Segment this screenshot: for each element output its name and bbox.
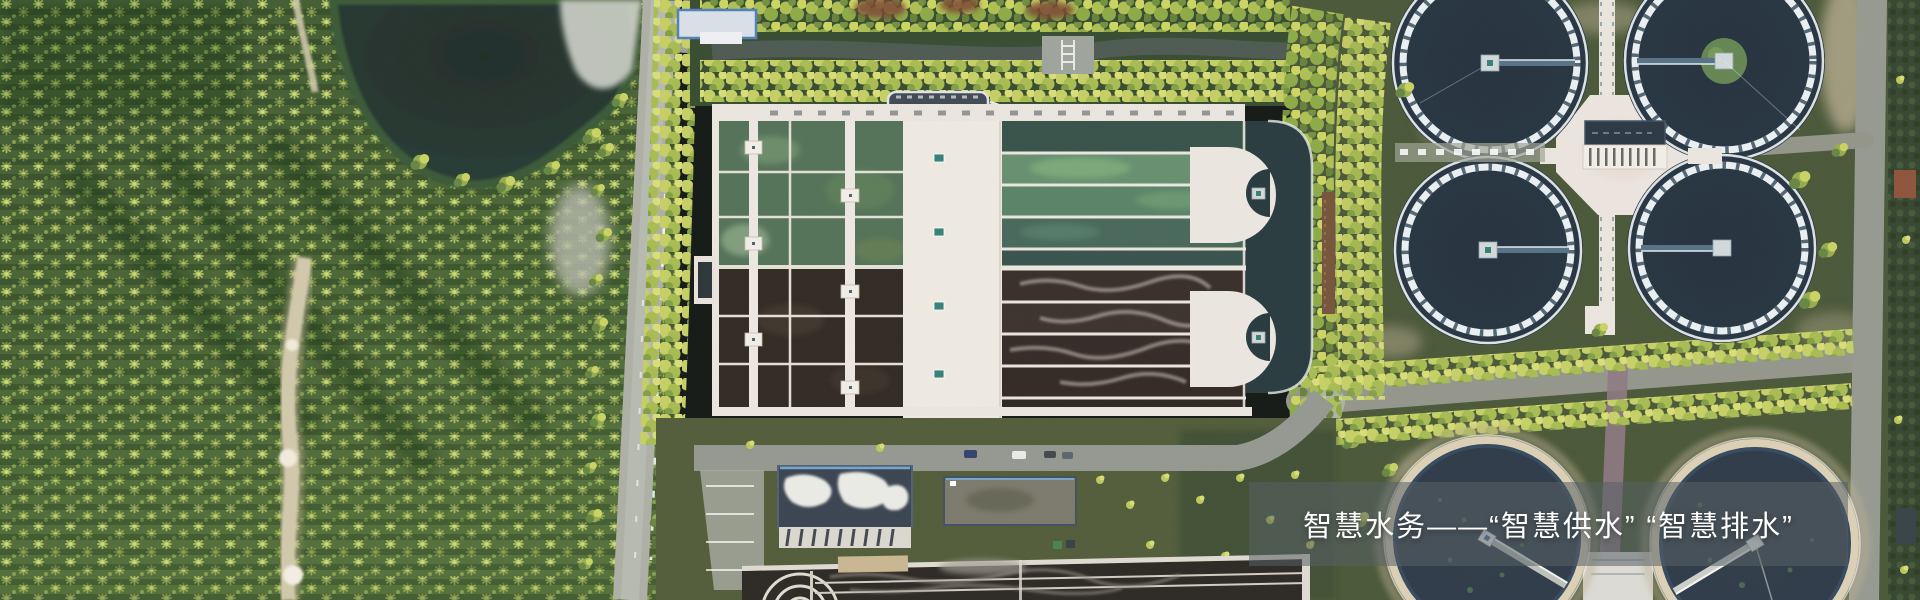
hero-caption: 智慧水务——“智慧供水” “智慧排水” [1303, 503, 1794, 545]
hero-banner: 智慧水务——“智慧供水” “智慧排水” [0, 0, 1920, 600]
hero-caption-bar: 智慧水务——“智慧供水” “智慧排水” [1249, 482, 1848, 566]
